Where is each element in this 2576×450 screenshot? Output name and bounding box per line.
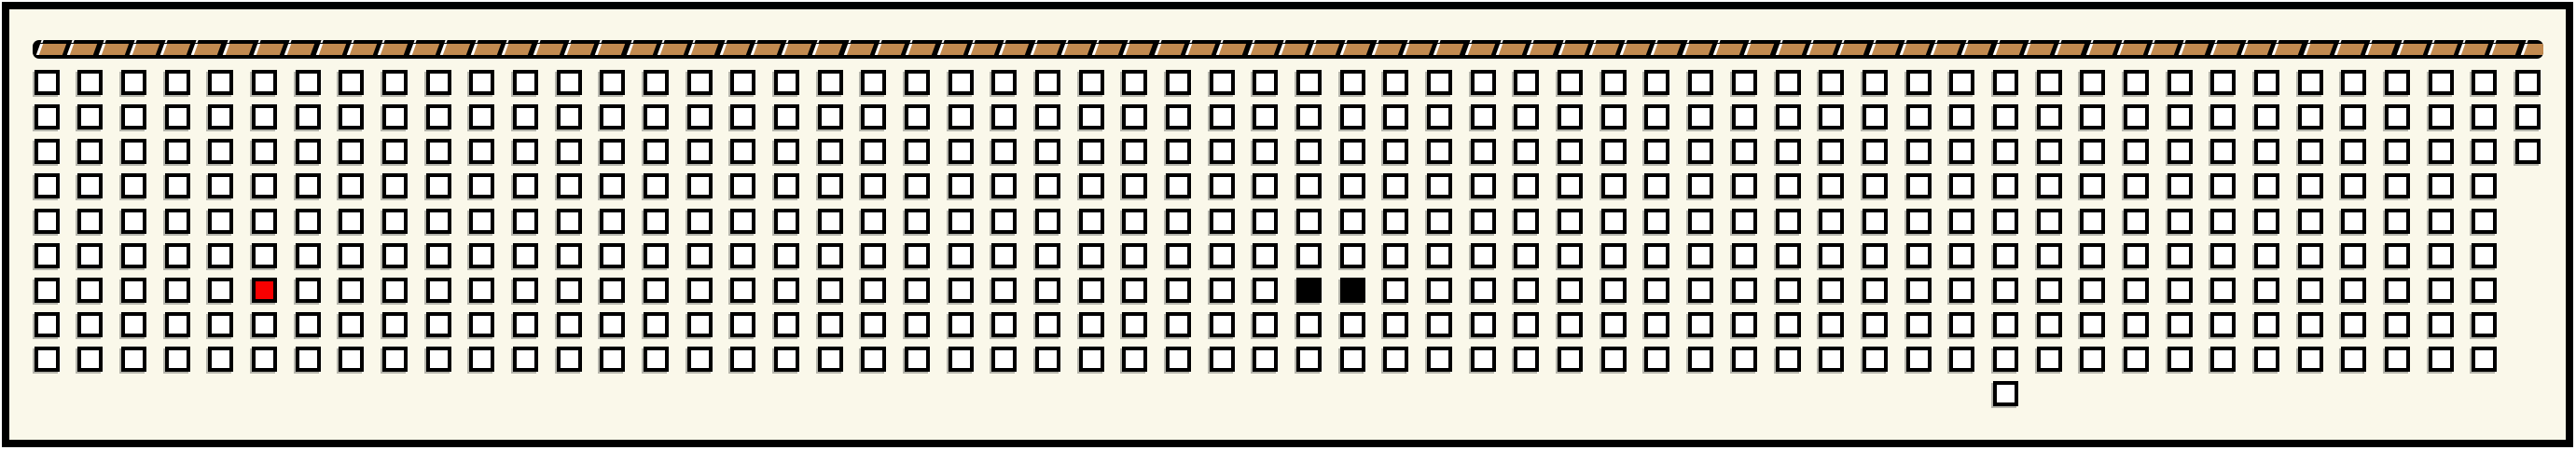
grid-square[interactable] — [1776, 312, 1801, 337]
grid-square[interactable] — [1644, 139, 1669, 164]
grid-square[interactable] — [2472, 104, 2497, 130]
grid-square[interactable] — [1514, 278, 1539, 303]
grid-square[interactable] — [2080, 70, 2105, 95]
grid-square[interactable] — [1471, 209, 1496, 234]
grid-square[interactable] — [77, 209, 103, 234]
grid-square[interactable] — [1688, 70, 1713, 95]
grid-square[interactable] — [296, 347, 321, 372]
grid-square[interactable] — [382, 278, 408, 303]
grid-square[interactable] — [774, 173, 799, 198]
grid-square[interactable] — [2210, 139, 2236, 164]
grid-square[interactable] — [296, 209, 321, 234]
grid-square[interactable] — [339, 173, 364, 198]
grid-square[interactable] — [1601, 312, 1627, 337]
grid-square[interactable] — [1732, 312, 1757, 337]
grid-square[interactable] — [905, 104, 930, 130]
grid-square[interactable] — [2472, 243, 2497, 268]
grid-square[interactable] — [121, 312, 146, 337]
grid-square[interactable] — [1296, 139, 1322, 164]
grid-square[interactable] — [469, 209, 494, 234]
grid-square[interactable] — [644, 243, 669, 268]
grid-square[interactable] — [469, 139, 494, 164]
grid-square[interactable] — [1079, 209, 1104, 234]
grid-square[interactable] — [2037, 139, 2062, 164]
grid-square[interactable] — [1383, 243, 1408, 268]
grid-square[interactable] — [991, 243, 1017, 268]
grid-square[interactable] — [2429, 347, 2454, 372]
grid-square[interactable] — [1558, 347, 1583, 372]
grid-square[interactable] — [2472, 278, 2497, 303]
grid-square[interactable] — [2341, 104, 2366, 130]
grid-square[interactable] — [600, 312, 625, 337]
grid-square[interactable] — [2124, 70, 2149, 95]
grid-square[interactable] — [1122, 312, 1147, 337]
grid-square[interactable] — [1993, 209, 2018, 234]
grid-square[interactable] — [1819, 278, 1844, 303]
grid-square[interactable] — [1296, 209, 1322, 234]
grid-square[interactable] — [1035, 209, 1060, 234]
grid-square[interactable] — [730, 347, 755, 372]
grid-square[interactable] — [1122, 173, 1147, 198]
grid-square[interactable] — [339, 243, 364, 268]
grid-square[interactable] — [2210, 70, 2236, 95]
grid-square[interactable] — [1993, 139, 2018, 164]
grid-square[interactable] — [1296, 312, 1322, 337]
grid-square[interactable] — [644, 139, 669, 164]
grid-square[interactable] — [1906, 278, 1932, 303]
grid-square[interactable] — [1210, 70, 1235, 95]
grid-square[interactable] — [644, 104, 669, 130]
grid-square[interactable] — [121, 173, 146, 198]
grid-square[interactable] — [949, 312, 974, 337]
grid-square[interactable] — [730, 173, 755, 198]
grid-square[interactable] — [818, 173, 843, 198]
grid-square[interactable] — [774, 70, 799, 95]
grid-square[interactable] — [2124, 139, 2149, 164]
grid-square[interactable] — [2298, 312, 2323, 337]
grid-square[interactable] — [1732, 70, 1757, 95]
grid-square[interactable] — [35, 312, 60, 337]
grid-square[interactable] — [2037, 312, 2062, 337]
grid-square[interactable] — [2429, 209, 2454, 234]
grid-square[interactable] — [1035, 173, 1060, 198]
grid-square[interactable] — [1558, 312, 1583, 337]
grid-square[interactable] — [1210, 312, 1235, 337]
grid-square[interactable] — [861, 139, 886, 164]
grid-square[interactable] — [513, 139, 538, 164]
grid-square[interactable] — [557, 139, 582, 164]
grid-square[interactable] — [296, 70, 321, 95]
grid-square[interactable] — [339, 209, 364, 234]
grid-square[interactable] — [644, 312, 669, 337]
grid-square[interactable] — [1383, 278, 1408, 303]
grid-square[interactable] — [1863, 278, 1888, 303]
grid-square[interactable] — [2472, 209, 2497, 234]
grid-square[interactable] — [1732, 243, 1757, 268]
grid-square[interactable] — [730, 104, 755, 130]
grid-square[interactable] — [600, 209, 625, 234]
grid-square[interactable] — [1732, 278, 1757, 303]
grid-square[interactable] — [1776, 104, 1801, 130]
grid-square[interactable] — [252, 209, 277, 234]
grid-square[interactable] — [1210, 104, 1235, 130]
grid-square[interactable] — [2429, 104, 2454, 130]
grid-square[interactable] — [77, 347, 103, 372]
grid-square[interactable] — [1383, 209, 1408, 234]
grid-square[interactable] — [2254, 243, 2279, 268]
grid-square[interactable] — [2385, 243, 2410, 268]
grid-square[interactable] — [687, 347, 713, 372]
grid-square[interactable] — [1122, 70, 1147, 95]
grid-square[interactable] — [469, 312, 494, 337]
grid-square[interactable] — [1601, 243, 1627, 268]
grid-square[interactable] — [730, 139, 755, 164]
grid-square[interactable] — [2080, 173, 2105, 198]
grid-square[interactable] — [2037, 243, 2062, 268]
grid-square[interactable] — [1688, 139, 1713, 164]
grid-square[interactable] — [1688, 173, 1713, 198]
grid-square[interactable] — [991, 104, 1017, 130]
grid-square[interactable] — [1863, 104, 1888, 130]
grid-square[interactable] — [208, 70, 233, 95]
grid-square[interactable] — [1993, 173, 2018, 198]
grid-square[interactable] — [2341, 278, 2366, 303]
grid-square[interactable] — [1993, 104, 2018, 130]
grid-square[interactable] — [35, 209, 60, 234]
grid-square[interactable] — [339, 278, 364, 303]
grid-square[interactable] — [1514, 243, 1539, 268]
grid-square[interactable] — [296, 173, 321, 198]
grid-square[interactable] — [1863, 347, 1888, 372]
grid-square[interactable] — [1122, 104, 1147, 130]
grid-square[interactable] — [2298, 139, 2323, 164]
grid-square[interactable] — [1863, 243, 1888, 268]
grid-square[interactable] — [35, 173, 60, 198]
grid-square[interactable] — [774, 104, 799, 130]
grid-square[interactable] — [905, 70, 930, 95]
grid-square[interactable] — [1340, 347, 1365, 372]
grid-square[interactable] — [1993, 243, 2018, 268]
grid-square[interactable] — [2385, 347, 2410, 372]
grid-square[interactable] — [644, 70, 669, 95]
grid-square[interactable] — [2429, 139, 2454, 164]
grid-square[interactable] — [949, 347, 974, 372]
grid-square[interactable] — [557, 209, 582, 234]
grid-square[interactable] — [1383, 347, 1408, 372]
grid-square[interactable] — [513, 70, 538, 95]
grid-square[interactable] — [949, 209, 974, 234]
grid-square[interactable] — [1035, 278, 1060, 303]
grid-square[interactable] — [252, 347, 277, 372]
grid-square[interactable] — [165, 173, 190, 198]
grid-square[interactable] — [121, 243, 146, 268]
grid-square[interactable] — [1166, 278, 1191, 303]
grid-square[interactable] — [2429, 173, 2454, 198]
grid-square[interactable] — [949, 70, 974, 95]
black-filled-square[interactable] — [1340, 278, 1365, 303]
grid-square[interactable] — [2167, 70, 2193, 95]
grid-square[interactable] — [469, 347, 494, 372]
grid-square[interactable] — [77, 70, 103, 95]
grid-square[interactable] — [382, 173, 408, 198]
grid-square[interactable] — [1644, 278, 1669, 303]
grid-square[interactable] — [2341, 173, 2366, 198]
grid-square[interactable] — [165, 209, 190, 234]
grid-square[interactable] — [1776, 243, 1801, 268]
grid-square[interactable] — [1427, 312, 1452, 337]
grid-square[interactable] — [1558, 173, 1583, 198]
grid-square[interactable] — [77, 278, 103, 303]
grid-square[interactable] — [2080, 278, 2105, 303]
grid-square[interactable] — [77, 139, 103, 164]
grid-square[interactable] — [600, 104, 625, 130]
grid-square[interactable] — [208, 312, 233, 337]
grid-square[interactable] — [600, 347, 625, 372]
grid-square[interactable] — [1863, 173, 1888, 198]
grid-square[interactable] — [2472, 139, 2497, 164]
grid-square[interactable] — [2167, 278, 2193, 303]
grid-square[interactable] — [2167, 104, 2193, 130]
grid-square[interactable] — [1340, 173, 1365, 198]
grid-square[interactable] — [905, 312, 930, 337]
grid-square[interactable] — [2210, 243, 2236, 268]
grid-square[interactable] — [1035, 243, 1060, 268]
grid-square[interactable] — [1949, 104, 1974, 130]
grid-square[interactable] — [1732, 347, 1757, 372]
grid-square[interactable] — [1688, 278, 1713, 303]
grid-square[interactable] — [1427, 209, 1452, 234]
grid-square[interactable] — [1253, 70, 1278, 95]
grid-square[interactable] — [2210, 312, 2236, 337]
grid-square[interactable] — [35, 347, 60, 372]
grid-square[interactable] — [296, 312, 321, 337]
grid-square[interactable] — [1819, 347, 1844, 372]
grid-square[interactable] — [1644, 243, 1669, 268]
grid-square[interactable] — [1471, 104, 1496, 130]
grid-square[interactable] — [165, 70, 190, 95]
grid-square[interactable] — [165, 139, 190, 164]
grid-square[interactable] — [1253, 312, 1278, 337]
grid-square[interactable] — [252, 173, 277, 198]
grid-square[interactable] — [252, 104, 277, 130]
grid-square[interactable] — [2124, 173, 2149, 198]
grid-square[interactable] — [991, 173, 1017, 198]
grid-square[interactable] — [1166, 312, 1191, 337]
grid-square[interactable] — [35, 139, 60, 164]
grid-square[interactable] — [1819, 173, 1844, 198]
grid-square[interactable] — [426, 243, 451, 268]
grid-square[interactable] — [687, 139, 713, 164]
grid-square[interactable] — [687, 70, 713, 95]
grid-square[interactable] — [469, 278, 494, 303]
grid-square[interactable] — [1210, 173, 1235, 198]
grid-square[interactable] — [949, 139, 974, 164]
grid-square[interactable] — [1514, 104, 1539, 130]
grid-square[interactable] — [1166, 209, 1191, 234]
grid-square[interactable] — [774, 347, 799, 372]
grid-square[interactable] — [905, 243, 930, 268]
grid-square[interactable] — [296, 243, 321, 268]
grid-square[interactable] — [513, 278, 538, 303]
grid-square[interactable] — [1079, 278, 1104, 303]
grid-square[interactable] — [382, 104, 408, 130]
grid-square[interactable] — [949, 243, 974, 268]
grid-square[interactable] — [861, 70, 886, 95]
grid-square[interactable] — [818, 312, 843, 337]
grid-square[interactable] — [2080, 104, 2105, 130]
grid-square[interactable] — [2341, 243, 2366, 268]
grid-square[interactable] — [1906, 312, 1932, 337]
grid-square[interactable] — [2167, 173, 2193, 198]
grid-square[interactable] — [121, 278, 146, 303]
grid-square[interactable] — [818, 243, 843, 268]
grid-square[interactable] — [644, 173, 669, 198]
grid-square[interactable] — [1776, 139, 1801, 164]
grid-square[interactable] — [600, 70, 625, 95]
grid-square[interactable] — [1906, 347, 1932, 372]
grid-square[interactable] — [165, 312, 190, 337]
grid-square[interactable] — [1776, 209, 1801, 234]
grid-square[interactable] — [426, 312, 451, 337]
grid-square[interactable] — [1166, 104, 1191, 130]
grid-square[interactable] — [644, 278, 669, 303]
grid-square[interactable] — [2298, 209, 2323, 234]
red-square[interactable] — [252, 278, 277, 303]
grid-square[interactable] — [1558, 70, 1583, 95]
grid-square[interactable] — [1906, 70, 1932, 95]
grid-square[interactable] — [1644, 173, 1669, 198]
grid-square[interactable] — [1383, 139, 1408, 164]
grid-square[interactable] — [905, 139, 930, 164]
grid-square[interactable] — [2080, 243, 2105, 268]
grid-square[interactable] — [687, 278, 713, 303]
grid-square[interactable] — [1732, 173, 1757, 198]
grid-square[interactable] — [2210, 347, 2236, 372]
grid-square[interactable] — [2037, 347, 2062, 372]
grid-square[interactable] — [2124, 209, 2149, 234]
grid-square[interactable] — [2385, 104, 2410, 130]
grid-square[interactable] — [35, 278, 60, 303]
grid-square[interactable] — [1471, 173, 1496, 198]
grid-square[interactable] — [2124, 278, 2149, 303]
grid-square[interactable] — [513, 312, 538, 337]
grid-square[interactable] — [2429, 243, 2454, 268]
grid-square[interactable] — [1035, 347, 1060, 372]
grid-square[interactable] — [1776, 347, 1801, 372]
grid-square[interactable] — [1949, 209, 1974, 234]
grid-square[interactable] — [2385, 139, 2410, 164]
grid-square[interactable] — [2385, 173, 2410, 198]
grid-square[interactable] — [1819, 70, 1844, 95]
grid-square[interactable] — [426, 347, 451, 372]
grid-square[interactable] — [208, 209, 233, 234]
grid-square[interactable] — [1296, 347, 1322, 372]
grid-square[interactable] — [730, 209, 755, 234]
grid-square[interactable] — [1906, 139, 1932, 164]
grid-square[interactable] — [77, 104, 103, 130]
grid-square[interactable] — [382, 243, 408, 268]
grid-square[interactable] — [339, 347, 364, 372]
grid-square[interactable] — [1688, 209, 1713, 234]
grid-square[interactable] — [339, 70, 364, 95]
grid-square[interactable] — [1427, 278, 1452, 303]
grid-square[interactable] — [513, 173, 538, 198]
grid-square[interactable] — [2472, 312, 2497, 337]
grid-square[interactable] — [1427, 347, 1452, 372]
grid-square[interactable] — [1210, 139, 1235, 164]
grid-square[interactable] — [1427, 70, 1452, 95]
grid-square[interactable] — [77, 173, 103, 198]
grid-square[interactable] — [1340, 139, 1365, 164]
grid-square[interactable] — [557, 347, 582, 372]
grid-square[interactable] — [1166, 347, 1191, 372]
grid-square[interactable] — [1253, 278, 1278, 303]
grid-square[interactable] — [1383, 70, 1408, 95]
grid-square[interactable] — [949, 173, 974, 198]
grid-square[interactable] — [1993, 347, 2018, 372]
grid-square[interactable] — [774, 312, 799, 337]
grid-square[interactable] — [382, 347, 408, 372]
grid-square[interactable] — [1644, 104, 1669, 130]
grid-square[interactable] — [426, 209, 451, 234]
grid-square[interactable] — [469, 104, 494, 130]
grid-square[interactable] — [35, 70, 60, 95]
grid-square[interactable] — [861, 173, 886, 198]
grid-square[interactable] — [121, 139, 146, 164]
grid-square[interactable] — [2254, 173, 2279, 198]
grid-square[interactable] — [991, 139, 1017, 164]
grid-square[interactable] — [600, 278, 625, 303]
grid-square[interactable] — [513, 104, 538, 130]
grid-square[interactable] — [861, 278, 886, 303]
grid-square[interactable] — [208, 347, 233, 372]
grid-square[interactable] — [1819, 312, 1844, 337]
grid-square[interactable] — [557, 104, 582, 130]
grid-square[interactable] — [1949, 70, 1974, 95]
grid-square[interactable] — [469, 173, 494, 198]
grid-square[interactable] — [1340, 209, 1365, 234]
grid-square[interactable] — [818, 139, 843, 164]
grid-square[interactable] — [1253, 139, 1278, 164]
grid-square[interactable] — [2254, 70, 2279, 95]
grid-square[interactable] — [513, 347, 538, 372]
grid-square[interactable] — [2298, 173, 2323, 198]
grid-square[interactable] — [2298, 278, 2323, 303]
grid-square[interactable] — [1863, 312, 1888, 337]
grid-square[interactable] — [2254, 209, 2279, 234]
grid-square[interactable] — [339, 312, 364, 337]
grid-square[interactable] — [2385, 278, 2410, 303]
grid-square[interactable] — [1079, 104, 1104, 130]
grid-square[interactable] — [2037, 209, 2062, 234]
grid-square[interactable] — [2080, 139, 2105, 164]
grid-square[interactable] — [2037, 104, 2062, 130]
grid-square[interactable] — [905, 173, 930, 198]
grid-square[interactable] — [252, 139, 277, 164]
grid-square[interactable] — [1471, 139, 1496, 164]
grid-square[interactable] — [2254, 347, 2279, 372]
grid-square[interactable] — [2298, 104, 2323, 130]
grid-square[interactable] — [2385, 70, 2410, 95]
grid-square[interactable] — [1819, 209, 1844, 234]
grid-square[interactable] — [121, 209, 146, 234]
grid-square[interactable] — [1949, 347, 1974, 372]
grid-square[interactable] — [1732, 209, 1757, 234]
grid-square[interactable] — [1688, 347, 1713, 372]
grid-square[interactable] — [1427, 104, 1452, 130]
grid-square[interactable] — [1427, 173, 1452, 198]
grid-square[interactable] — [1993, 312, 2018, 337]
